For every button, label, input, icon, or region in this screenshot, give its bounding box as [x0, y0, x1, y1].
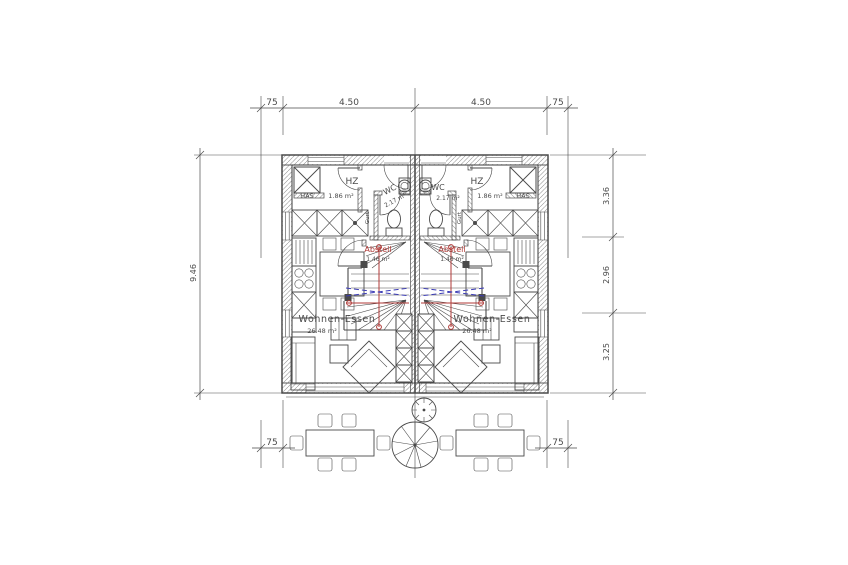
- label-has-left: HAS: [300, 192, 313, 200]
- room-label-abstell-right: Abstell: [438, 245, 465, 254]
- dim-top-4: 75: [552, 98, 563, 108]
- dim-right-3: 3.25: [602, 343, 611, 361]
- room-label-abstell-left: Abstell: [364, 245, 391, 254]
- room-label-wc-right: WC: [431, 183, 445, 192]
- dim-top-2: 4.50: [339, 98, 359, 108]
- dim-bottom-left: 75: [266, 438, 277, 448]
- area-living-right: 26.48 m²: [462, 327, 492, 335]
- dim-left-total: 9.46: [189, 264, 198, 282]
- area-hz-right: 1.86 m²: [477, 192, 503, 200]
- area-wc-right: 2.17 m²: [436, 195, 460, 202]
- unit-right-geometry: [418, 155, 548, 471]
- room-label-wc-left: WC: [382, 182, 399, 196]
- room-label-living-right: Wohnen-Essen: [454, 314, 531, 325]
- dim-right-1: 3.36: [602, 187, 611, 205]
- room-label-living-left: Wohnen-Essen: [299, 314, 376, 325]
- room-label-hz-right: HZ: [471, 177, 484, 187]
- dim-top-1: 75: [266, 98, 277, 108]
- area-abstell-right: 1.46 m²: [440, 256, 464, 263]
- dim-right-2: 2.96: [602, 266, 611, 284]
- area-living-left: 26.48 m²: [307, 327, 337, 335]
- room-label-hz-left: HZ: [346, 177, 359, 187]
- area-abstell-left: 1.46 m²: [366, 256, 390, 263]
- label-gurt-right: Gurt: [457, 211, 463, 224]
- area-hz-left: 1.86 m²: [328, 192, 354, 200]
- label-has-right: HAS: [516, 192, 529, 200]
- floor-plan-page: 75 4.50 4.50 75 9.46 3.36 2.96 3.25 75 7…: [0, 0, 848, 565]
- label-gurt-left: Gurt: [365, 211, 371, 224]
- floor-plan-canvas: 75 4.50 4.50 75 9.46 3.36 2.96 3.25 75 7…: [0, 0, 848, 565]
- dimension-lines: [194, 88, 646, 478]
- dim-top-3: 4.50: [471, 98, 491, 108]
- dim-bottom-right: 75: [552, 438, 563, 448]
